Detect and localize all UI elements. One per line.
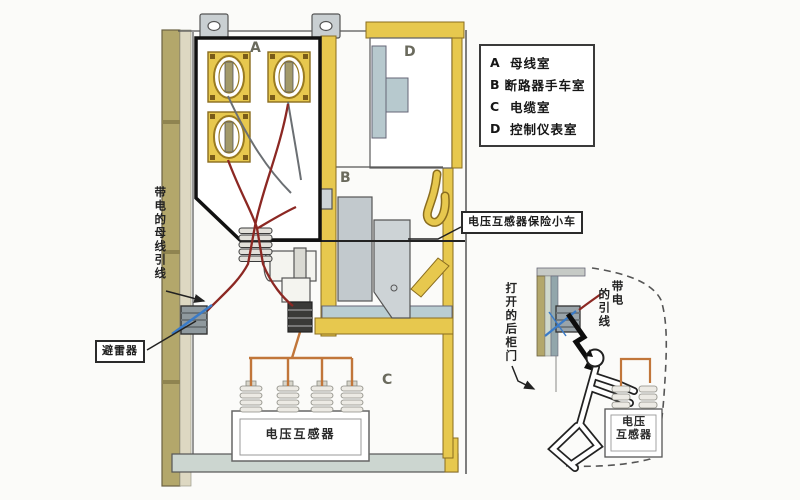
live-lead-line2: 的引线: [597, 280, 610, 342]
busbar-lead-vertical-label: 带电的母线引线: [153, 186, 166, 298]
legend-key: A: [490, 55, 505, 70]
legend-key: B: [490, 77, 500, 92]
switchgear-diagram: A 母线室 B 断路器手车室 C 电缆室 D 控制仪表室 A B C D 避雷器…: [0, 0, 800, 500]
handcart: [338, 197, 410, 318]
inset-vt-label: 电压 互感器: [610, 416, 658, 441]
legend-item-c: C 电缆室: [490, 97, 584, 116]
legend-label: 电缆室: [510, 97, 551, 116]
inset-vt-line1: 电压: [610, 416, 658, 429]
legend-label: 母线室: [510, 53, 551, 72]
open-rear-door-label: 打开的后柜门: [504, 282, 517, 370]
coil-bushing: [239, 228, 272, 262]
legend-box: A 母线室 B 断路器手车室 C 电缆室 D 控制仪表室: [479, 44, 595, 147]
legend-key: C: [490, 99, 505, 114]
orange-wires: [249, 332, 352, 386]
compartment-d: [316, 22, 464, 168]
inset-vt-line2: 互感器: [610, 429, 658, 442]
compartment-letter-a: A: [250, 40, 261, 56]
voltage-transformer-label: 电压互感器: [233, 428, 368, 442]
legend-label: 控制仪表室: [510, 119, 578, 138]
vt-insulators: [240, 381, 363, 412]
compartment-letter-c: C: [382, 372, 392, 388]
busbar-duct-wall: [321, 36, 336, 336]
compartment-letter-d: D: [404, 44, 416, 60]
inset-voltage-transformer: [605, 359, 662, 457]
arrester-label: 避雷器: [95, 340, 145, 363]
cable-terminal: [288, 302, 312, 332]
legend-item-d: D 控制仪表室: [490, 119, 584, 138]
legend-label: 断路器手车室: [505, 75, 586, 94]
compartment-letter-b: B: [340, 170, 351, 186]
lifting-lug: [200, 14, 340, 38]
legend-item-a: A 母线室: [490, 53, 584, 72]
legend-key: D: [490, 121, 505, 136]
legend-item-b: B 断路器手车室: [490, 75, 584, 94]
live-lead-line1: 带电: [610, 280, 623, 342]
live-lead-label: 带电 的引线: [597, 280, 623, 342]
diagram-art: [0, 0, 800, 500]
lower-bushing: [264, 248, 316, 302]
vt-fuse-cart-label: 电压互感器保险小车: [461, 211, 583, 234]
